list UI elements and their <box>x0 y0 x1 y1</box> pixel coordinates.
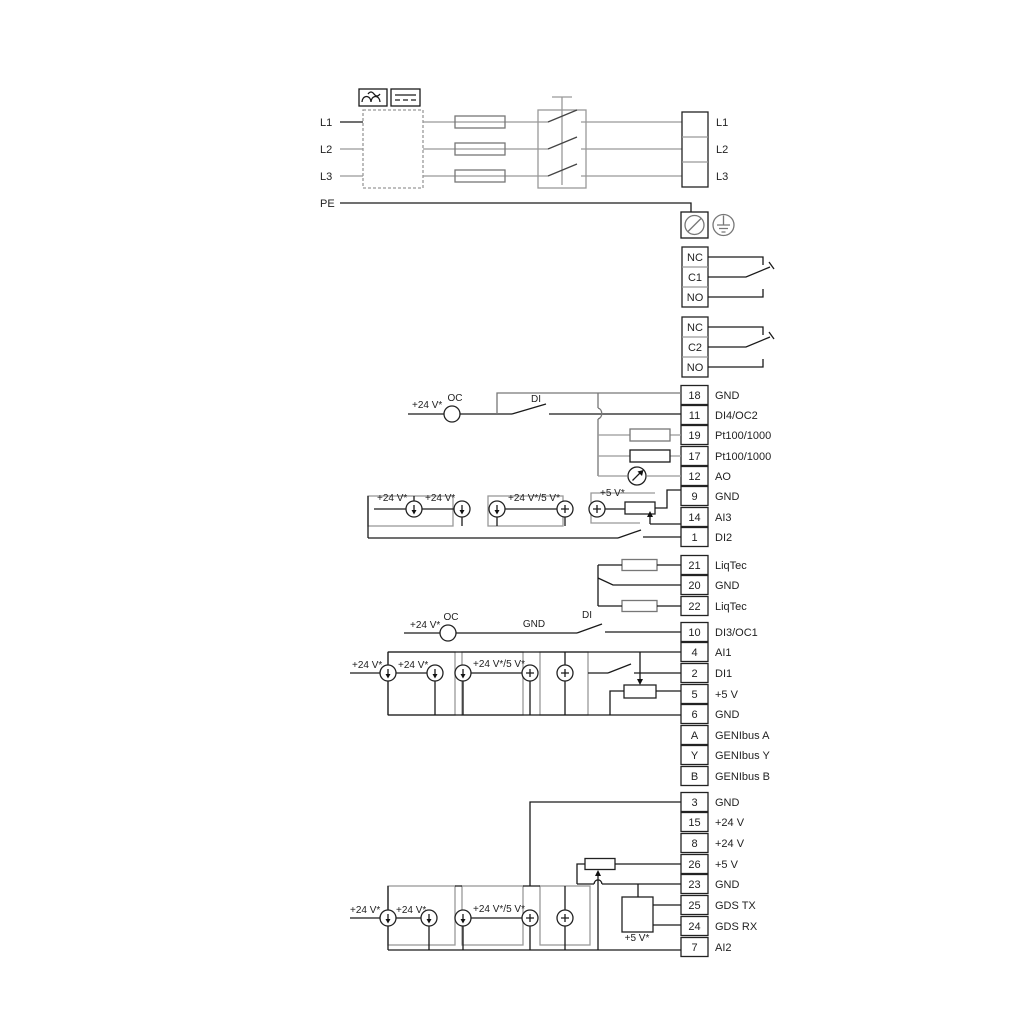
relay1-no: NO <box>687 292 704 304</box>
wiring-diagram-page: L1 L2 L3 PE <box>0 0 1024 1024</box>
annotation-di: DI <box>531 394 541 405</box>
sensor-wiring-d <box>350 802 681 950</box>
mains-terminal-block: L1 L2 L3 <box>682 112 728 187</box>
terminal-17-label: Pt100/1000 <box>715 451 771 463</box>
annotation-24v: +24 V* <box>377 493 407 504</box>
terminal-5-label: +5 V <box>715 689 739 701</box>
terminal-8-label: +24 V <box>715 838 745 850</box>
annotation-5v: +5 V* <box>625 933 650 944</box>
annotation-24v: +24 V* <box>350 905 380 916</box>
power-input-l1: L1 <box>320 117 332 129</box>
terminal-20-label: GND <box>715 580 740 592</box>
terminal-21-pin: 21 <box>688 560 700 572</box>
terminal-genibus-y-label: GENIbus Y <box>715 750 770 762</box>
annotation-24v-5v: +24 V*/5 V* <box>473 659 525 670</box>
terminal-3-pin: 3 <box>691 797 697 809</box>
annotation-24v-5v: +24 V*/5 V* <box>473 904 525 915</box>
annotation-24v: +24 V* <box>425 493 455 504</box>
terminal-26-label: +5 V <box>715 859 739 871</box>
open-collector-icon <box>440 625 456 641</box>
annotation-oc: OC <box>444 612 459 623</box>
analog-output-meter-icon <box>598 467 681 485</box>
terminal-12-pin: 12 <box>688 471 700 483</box>
pe-screw-terminal-icon <box>681 212 708 238</box>
open-collector-icon <box>444 406 460 422</box>
terminal-6-label: GND <box>715 709 740 721</box>
relay2-contact-icon <box>708 327 774 367</box>
terminal-group-a: 18 GND 11 DI4/OC2 19 Pt100/1000 17 Pt100… <box>368 386 771 547</box>
annotation-24v: +24 V* <box>410 620 440 631</box>
terminal-2-label: DI1 <box>715 668 732 680</box>
terminal-9-label: GND <box>715 491 740 503</box>
terminal-12-label: AO <box>715 471 731 483</box>
liqtec-resistor-icon <box>622 560 657 571</box>
terminal-group-b: 21 LiqTec 20 GND 22 LiqTec <box>598 556 747 616</box>
terminal-19-label: Pt100/1000 <box>715 430 771 442</box>
relay2-c2: C2 <box>688 342 702 354</box>
terminal-group-c: 10 DI3/OC1 4 AI1 2 DI1 5 +5 V 6 GND A GE… <box>350 610 770 786</box>
terminal-1-label: DI2 <box>715 532 732 544</box>
terminal-5-pin: 5 <box>691 689 697 701</box>
terminal-9-pin: 9 <box>691 491 697 503</box>
terminal-25-label: GDS TX <box>715 900 756 912</box>
terminal-18-label: GND <box>715 390 740 402</box>
annotation-24v-5v: +24 V*/5 V* <box>508 493 560 504</box>
terminal-26-pin: 26 <box>688 859 700 871</box>
gds-sensor-box <box>622 897 653 932</box>
terminal-18-pin: 18 <box>688 390 700 402</box>
terminal-4-pin: 4 <box>691 647 697 659</box>
terminal-15-label: +24 V <box>715 817 745 829</box>
wiring-diagram: L1 L2 L3 PE <box>0 0 1024 1024</box>
terminal-genibus-a-pin: A <box>691 730 699 742</box>
filter-box <box>363 110 423 188</box>
terminal-4-label: AI1 <box>715 647 732 659</box>
mains-terminal-l2: L2 <box>716 144 728 156</box>
relay1-nc: NC <box>687 252 703 264</box>
annotation-24v: +24 V* <box>398 660 428 671</box>
terminal-genibus-y-pin: Y <box>691 750 699 762</box>
pt100-sensor-1-icon <box>598 429 681 441</box>
potentiometer-icon <box>624 685 656 698</box>
terminal-genibus-a-label: GENIbus A <box>715 730 770 742</box>
terminal-19-pin: 19 <box>688 430 700 442</box>
pt100-sensor-2-icon <box>598 450 681 462</box>
terminal-15-pin: 15 <box>688 817 700 829</box>
relay2-nc: NC <box>687 322 703 334</box>
power-input-l3: L3 <box>320 171 332 183</box>
earth-ground-icon <box>713 215 734 236</box>
annotation-24v: +24 V* <box>412 400 442 411</box>
relay2-no: NO <box>687 362 704 374</box>
terminal-1-pin: 1 <box>691 532 697 544</box>
mains-terminal-l1: L1 <box>716 117 728 129</box>
terminal-22-label: LiqTec <box>715 601 747 613</box>
relay2-block: NC C2 NO <box>682 317 774 377</box>
power-input-pe: PE <box>320 198 335 210</box>
terminal-24-pin: 24 <box>688 921 700 933</box>
terminal-genibus-b-pin: B <box>691 771 698 783</box>
terminal-11-pin: 11 <box>689 410 700 422</box>
liqtec-resistor-icon <box>622 601 657 612</box>
potentiometer-icon <box>585 859 615 870</box>
terminal-8-pin: 8 <box>691 838 697 850</box>
relay1-block: NC C1 NO <box>682 247 774 307</box>
terminal-24-label: GDS RX <box>715 921 758 933</box>
terminal-25-pin: 25 <box>688 900 700 912</box>
relay1-contact-icon <box>708 257 774 297</box>
power-wiring <box>340 122 691 212</box>
terminal-group-d: 3 GND 15 +24 V 8 +24 V 26 +5 V 23 GND 25… <box>350 793 758 957</box>
terminal-23-label: GND <box>715 879 740 891</box>
mains-terminal-l3: L3 <box>716 171 728 183</box>
annotation-24v: +24 V* <box>352 660 382 671</box>
dc-symbol-icon <box>391 89 420 106</box>
terminal-7-label: AI2 <box>715 942 732 954</box>
annotation-di: DI <box>582 610 592 621</box>
oc2-wiring <box>408 393 681 476</box>
terminal-6-pin: 6 <box>691 709 697 721</box>
terminal-22-pin: 22 <box>688 601 700 613</box>
terminal-3-label: GND <box>715 797 740 809</box>
power-section: L1 L2 L3 PE <box>320 89 734 238</box>
terminal-11-label: DI4/OC2 <box>715 410 758 422</box>
terminal-genibus-b-label: GENIbus B <box>715 771 770 783</box>
relay1-c1: C1 <box>688 272 702 284</box>
ac-symbol-icon <box>359 89 387 106</box>
main-switch-icon <box>538 97 586 188</box>
annotation-gnd: GND <box>523 619 545 630</box>
annotation-oc: OC <box>448 393 463 404</box>
terminal-7-pin: 7 <box>691 942 697 954</box>
liqtec-sensor-wiring <box>598 560 681 612</box>
annotation-5v: +5 V* <box>600 488 625 499</box>
power-input-l2: L2 <box>320 144 332 156</box>
terminal-2-pin: 2 <box>691 668 697 680</box>
terminal-20-pin: 20 <box>688 580 700 592</box>
terminal-10-label: DI3/OC1 <box>715 627 758 639</box>
terminal-14-label: AI3 <box>715 512 732 524</box>
terminal-21-label: LiqTec <box>715 560 747 572</box>
terminal-23-pin: 23 <box>688 879 700 891</box>
terminal-10-pin: 10 <box>688 627 700 639</box>
terminal-17-pin: 17 <box>688 451 700 463</box>
terminal-14-pin: 14 <box>688 512 700 524</box>
